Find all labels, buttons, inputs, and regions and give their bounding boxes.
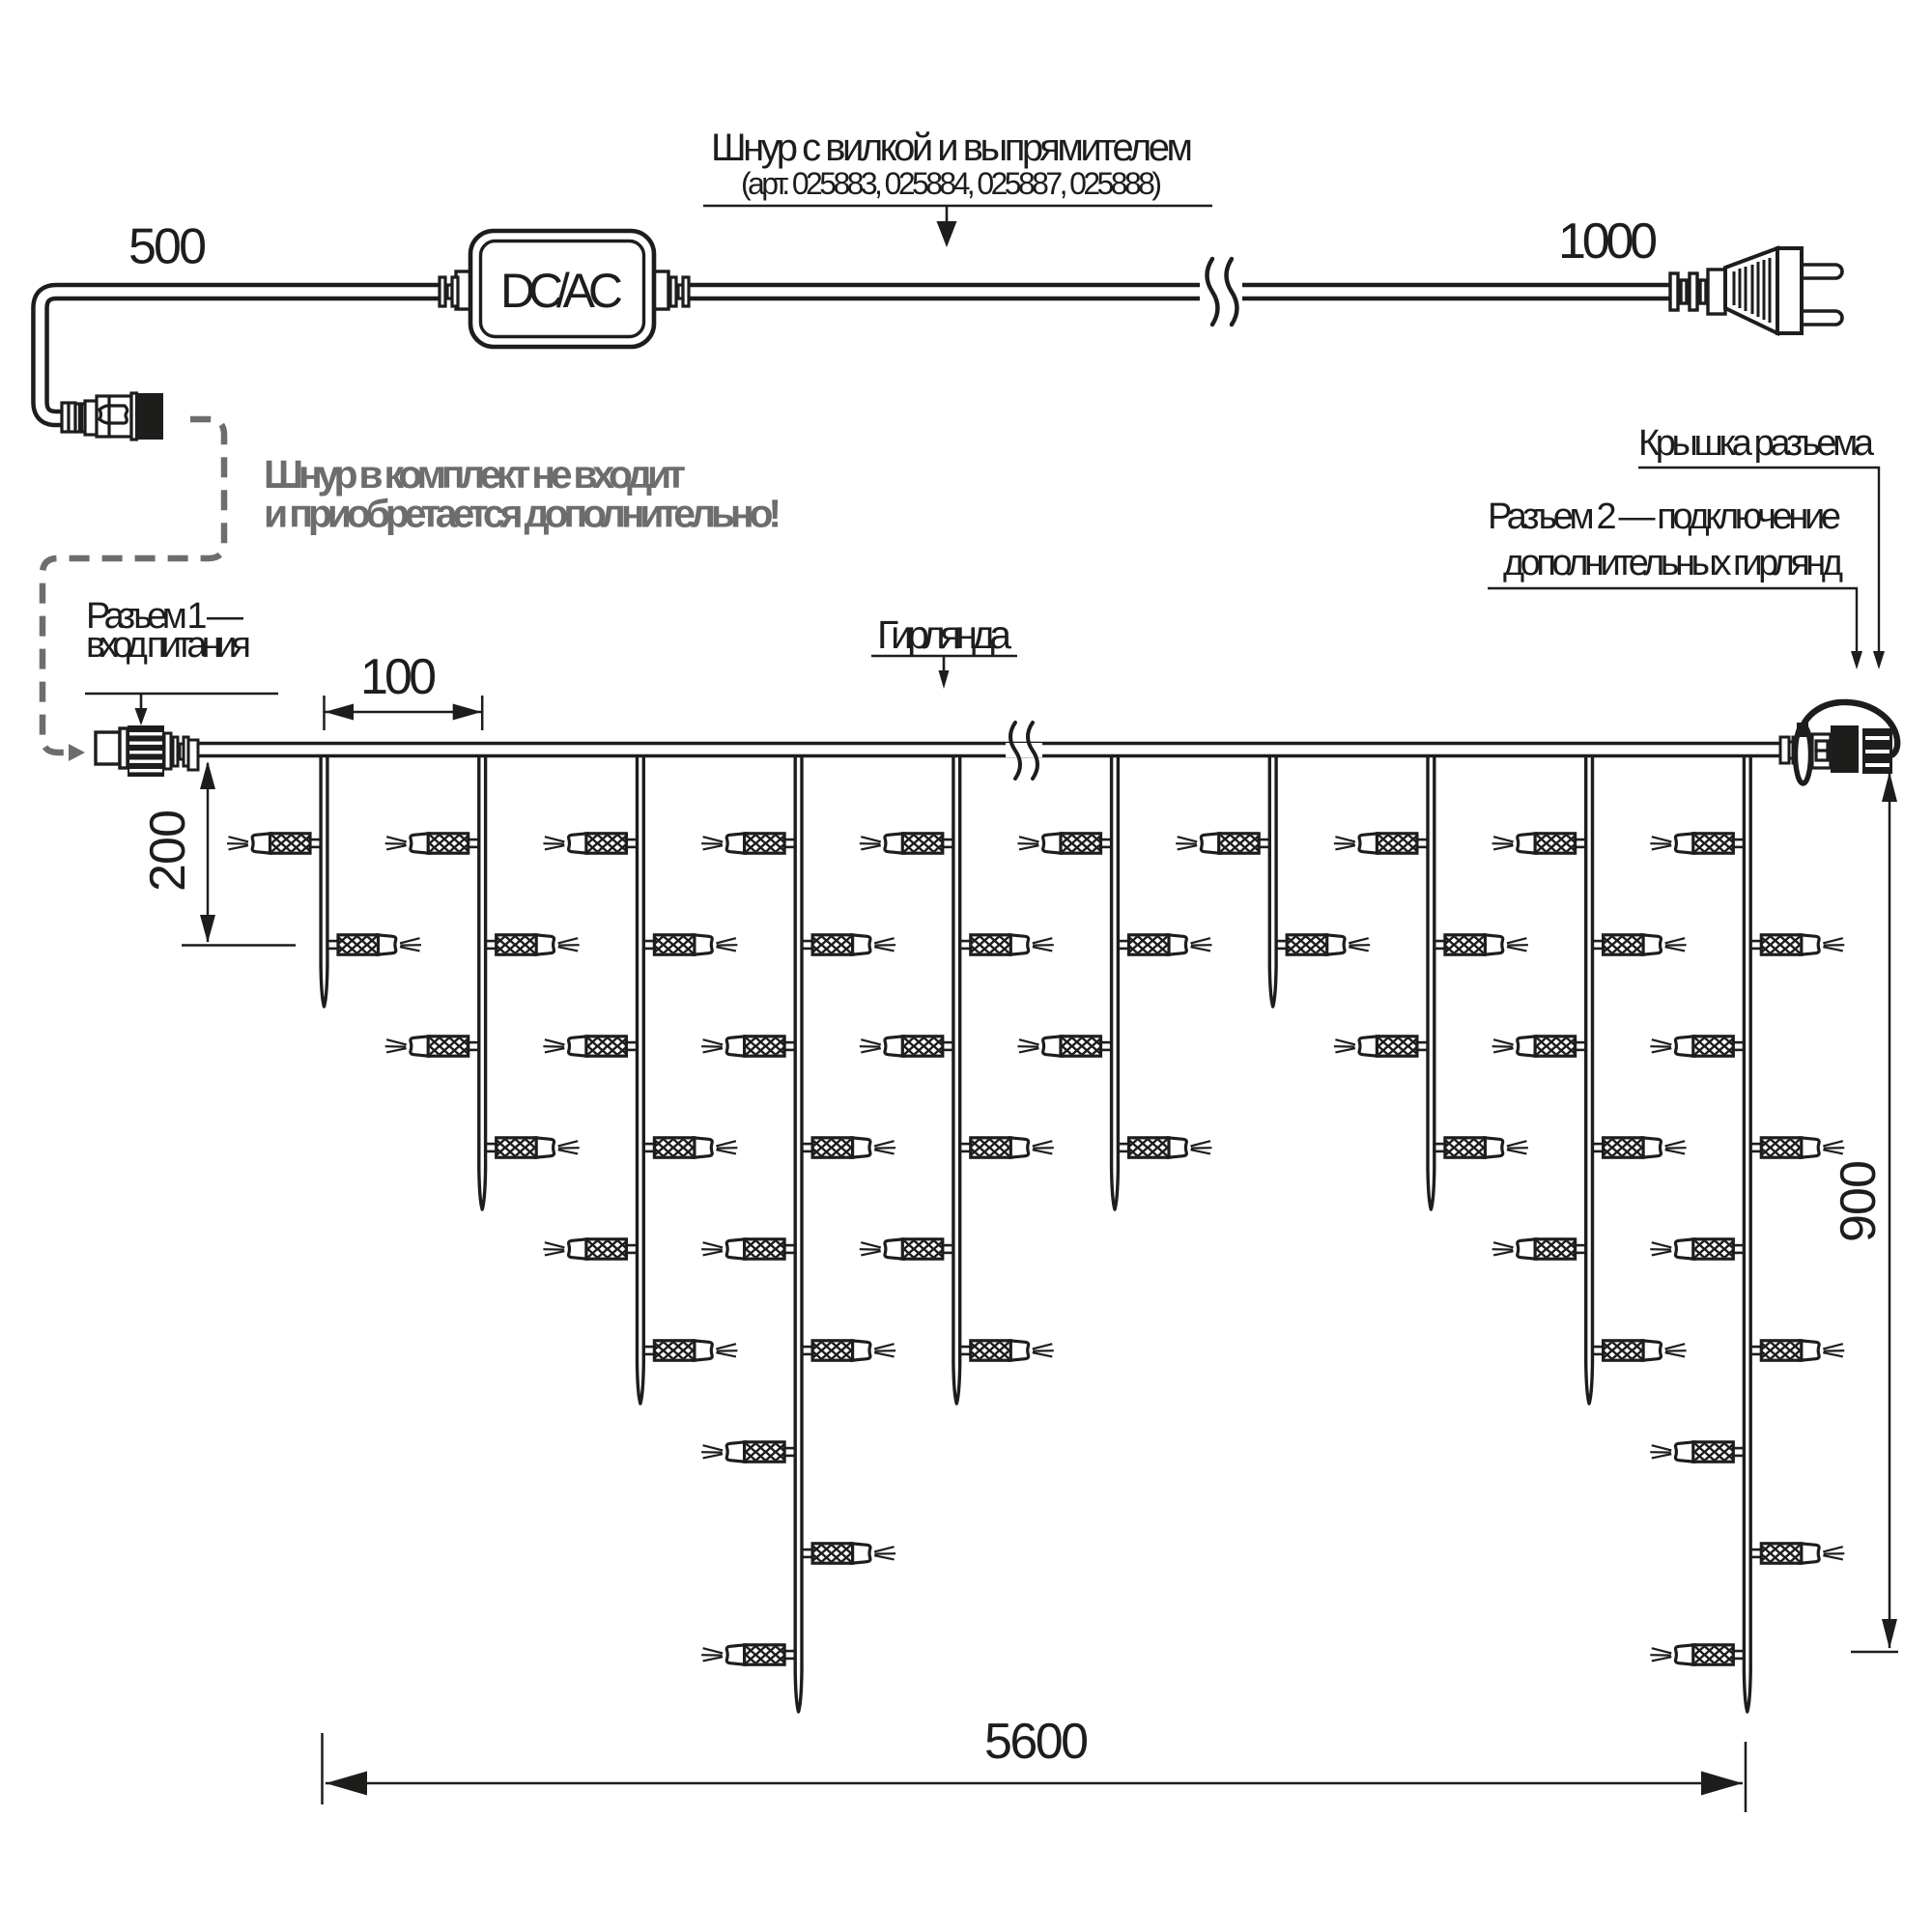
- svg-text:дополнительных гирлянд: дополнительных гирлянд: [1503, 543, 1843, 583]
- svg-text:Разъем 2 — подключение: Разъем 2 — подключение: [1488, 497, 1841, 537]
- svg-text:вход питания: вход питания: [86, 625, 251, 666]
- svg-text:500: 500: [128, 219, 207, 275]
- svg-text:(арт. 025883, 025884, 025887,: (арт. 025883, 025884, 025887, 025888): [741, 166, 1162, 201]
- svg-text:5600: 5600: [984, 1714, 1089, 1770]
- svg-text:200: 200: [140, 810, 196, 892]
- svg-text:Гирлянда: Гирлянда: [877, 612, 1011, 657]
- svg-text:Крышка разъема: Крышка разъема: [1638, 423, 1875, 464]
- svg-text:Шнур с вилкой и выпрямителем: Шнур с вилкой и выпрямителем: [711, 127, 1193, 169]
- svg-text:1000: 1000: [1558, 213, 1658, 270]
- svg-text:DC/AC: DC/AC: [500, 264, 623, 318]
- svg-text:Шнур в комплект не входит: Шнур в комплект не входит: [264, 452, 686, 497]
- svg-text:и приобретается дополнительно!: и приобретается дополнительно!: [264, 492, 781, 536]
- svg-text:100: 100: [360, 649, 437, 705]
- svg-text:900: 900: [1831, 1160, 1887, 1242]
